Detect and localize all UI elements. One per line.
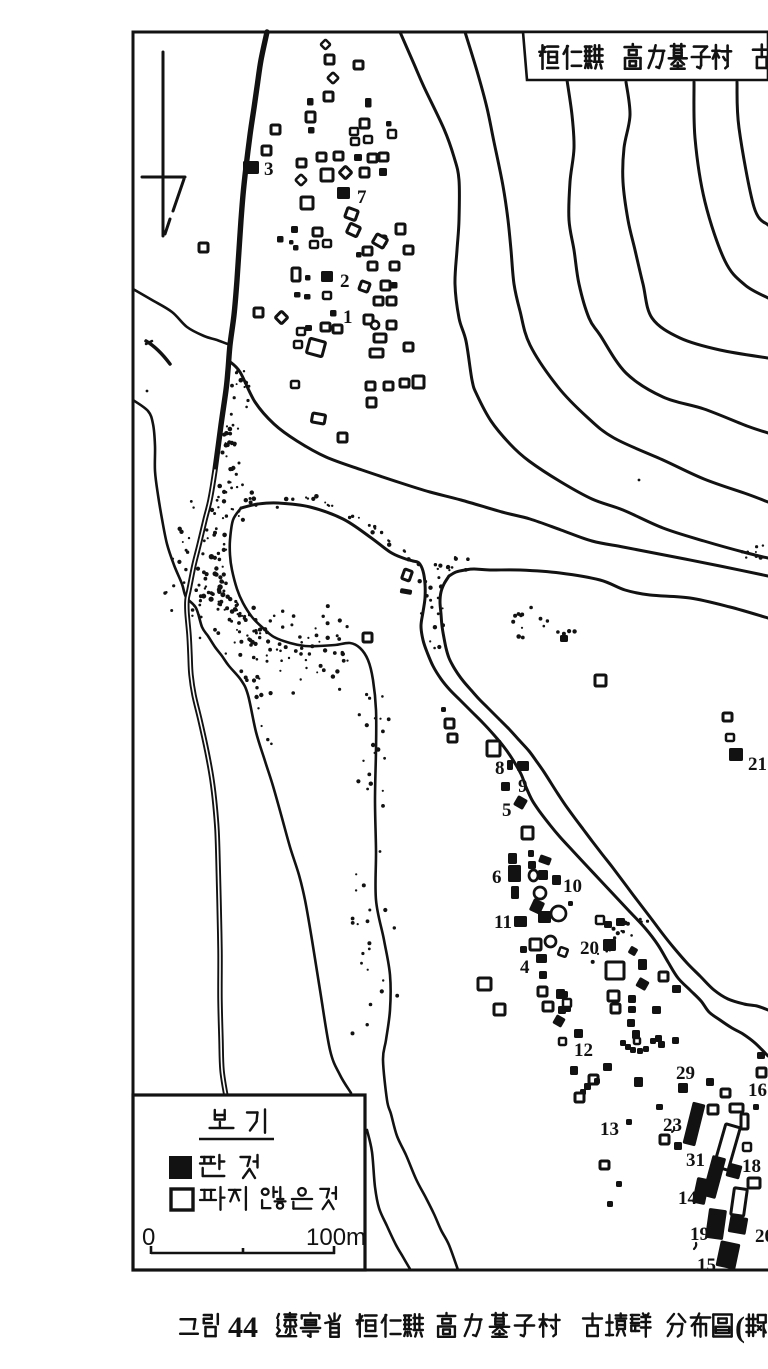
svg-text:100m: 100m — [306, 1224, 366, 1251]
svg-text:44: 44 — [228, 1311, 258, 1344]
svg-text:19: 19 — [690, 1224, 709, 1245]
svg-text:4: 4 — [520, 957, 530, 978]
svg-text:3: 3 — [264, 159, 274, 180]
svg-text:20: 20 — [755, 1226, 768, 1247]
svg-text:11: 11 — [494, 912, 512, 933]
svg-text:(: ( — [735, 1311, 745, 1344]
svg-text:1: 1 — [343, 307, 353, 328]
svg-text:16: 16 — [748, 1080, 767, 1101]
svg-text:18: 18 — [742, 1156, 761, 1177]
svg-text:0: 0 — [142, 1224, 155, 1251]
svg-text:8: 8 — [495, 758, 505, 779]
svg-text:10: 10 — [563, 876, 582, 897]
svg-text:21: 21 — [748, 754, 767, 775]
svg-text:14: 14 — [678, 1188, 698, 1209]
svg-text:9: 9 — [518, 776, 528, 797]
svg-text:5: 5 — [502, 800, 512, 821]
svg-text:12: 12 — [574, 1040, 593, 1061]
svg-text:2: 2 — [340, 271, 350, 292]
svg-text:31: 31 — [686, 1150, 705, 1171]
svg-text:15: 15 — [697, 1255, 716, 1276]
svg-text:29: 29 — [676, 1063, 695, 1084]
svg-text:13: 13 — [600, 1119, 619, 1140]
svg-text:6: 6 — [492, 867, 502, 888]
svg-text:20: 20 — [580, 938, 599, 959]
svg-text:7: 7 — [357, 187, 367, 208]
